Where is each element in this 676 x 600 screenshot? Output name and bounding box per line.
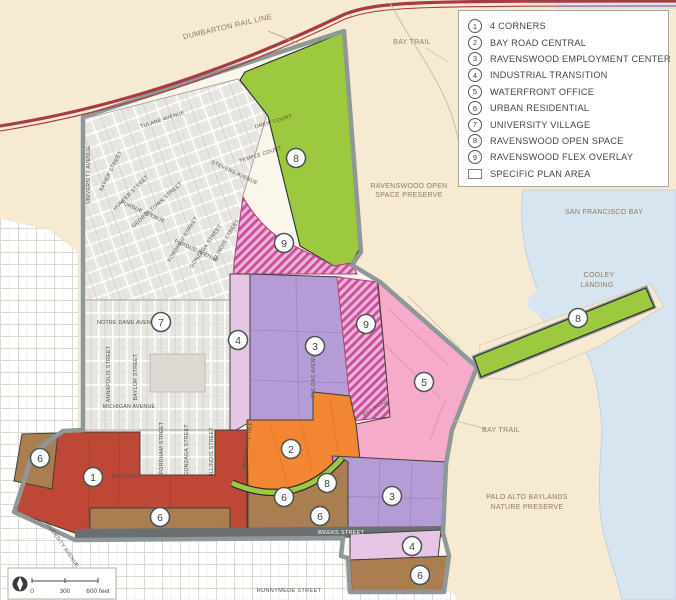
- map-label: GONZAGA STREET: [184, 424, 190, 476]
- svg-text:9: 9: [363, 319, 369, 331]
- svg-text:1: 1: [90, 472, 96, 484]
- legend-circle-2: 2: [468, 36, 482, 50]
- map-label: SPACE PRESERVE: [375, 192, 442, 199]
- svg-text:4: 4: [409, 541, 415, 553]
- district-marker-8: 8: [287, 149, 306, 168]
- svg-text:5: 5: [421, 377, 427, 389]
- legend-label: SPECIFIC PLAN AREA: [490, 169, 591, 179]
- legend-circle-4: 4: [468, 68, 482, 82]
- scale-end: 600 feet: [86, 588, 110, 595]
- legend-item-8: 8 RAVENSWOOD OPEN SPACE: [468, 133, 659, 149]
- district-marker-8: 8: [569, 309, 588, 328]
- district-marker-4: 4: [229, 331, 248, 350]
- map-label: NATURE PRESERVE: [491, 504, 564, 511]
- legend-circle-7: 7: [468, 118, 482, 132]
- legend-label: RAVENSWOOD FLEX OVERLAY: [490, 152, 633, 162]
- legend-item-2: 2 BAY ROAD CENTRAL: [468, 34, 659, 50]
- legend-item-9: 9 RAVENSWOOD FLEX OVERLAY: [468, 149, 659, 165]
- legend-circle-8: 8: [468, 134, 482, 148]
- legend: 1 4 CORNERS 2 BAY ROAD CENTRAL 3 RAVENSW…: [458, 10, 669, 187]
- district-7-tongue: [140, 430, 215, 475]
- legend-label: WATERFRONT OFFICE: [490, 87, 594, 97]
- map-label: BAY ROAD: [112, 474, 141, 480]
- district-marker-7: 7: [152, 313, 171, 332]
- svg-text:2: 2: [288, 444, 294, 456]
- specific-plan-map: 0 300 600 feet DUMBARTON RAIL LINEBAY TR…: [0, 0, 676, 600]
- map-label: WEEKS STREET: [318, 530, 365, 536]
- svg-text:6: 6: [157, 512, 163, 524]
- district-marker-1: 1: [84, 468, 103, 487]
- district-4-industrial-transition: [230, 274, 250, 430]
- legend-item-5: 5 WATERFRONT OFFICE: [468, 84, 659, 100]
- svg-text:8: 8: [324, 478, 330, 490]
- district-marker-6: 6: [311, 507, 330, 526]
- legend-circle-9: 9: [468, 150, 482, 164]
- map-label: ANNAPOLIS STREET: [106, 345, 112, 402]
- legend-label: BAY ROAD CENTRAL: [490, 38, 586, 48]
- map-label: BAY TRAIL: [482, 427, 520, 434]
- plan-area-swatch: [468, 169, 482, 179]
- svg-text:3: 3: [312, 341, 318, 353]
- map-label: LANDING: [580, 282, 613, 289]
- legend-circle-1: 1: [468, 19, 482, 33]
- map-label: COOLEY: [584, 272, 615, 279]
- svg-text:7: 7: [158, 317, 164, 329]
- svg-text:8: 8: [293, 153, 299, 165]
- map-label: UNIVERSITY AVENUE: [86, 146, 92, 204]
- svg-text:8: 8: [575, 313, 581, 325]
- svg-text:6: 6: [37, 453, 43, 465]
- svg-text:3: 3: [389, 491, 395, 503]
- legend-label: 4 CORNERS: [490, 21, 546, 31]
- district-marker-6: 6: [275, 488, 294, 507]
- district-marker-3: 3: [306, 337, 325, 356]
- legend-item-6: 6 URBAN RESIDENTIAL: [468, 100, 659, 116]
- map-label: FORDHAM STREET: [159, 421, 165, 474]
- legend-circle-5: 5: [468, 85, 482, 99]
- svg-text:9: 9: [281, 238, 287, 250]
- map-label: BAY TRAIL: [393, 39, 431, 46]
- map-label: SAN FRANCISCO BAY: [565, 209, 643, 216]
- district-6-urban-residential-southeast: [350, 556, 450, 592]
- svg-text:6: 6: [417, 570, 423, 582]
- svg-text:6: 6: [281, 492, 287, 504]
- district-marker-4: 4: [403, 537, 422, 556]
- district-marker-6: 6: [411, 566, 430, 585]
- legend-item-1: 1 4 CORNERS: [468, 18, 659, 34]
- large-parcel-block: [150, 354, 205, 392]
- map-label: RAVENSWOOD OPEN: [370, 183, 447, 190]
- legend-label: RAVENSWOOD EMPLOYMENT CENTER: [490, 54, 671, 64]
- scale-mid: 300: [60, 588, 71, 595]
- map-label: BAYLOR STREET: [133, 353, 139, 400]
- legend-item-7: 7 UNIVERSITY VILLAGE: [468, 116, 659, 132]
- svg-text:4: 4: [235, 335, 241, 347]
- legend-item-plan-area: SPECIFIC PLAN AREA: [468, 166, 659, 182]
- district-marker-6: 6: [31, 449, 50, 468]
- district-marker-8: 8: [318, 474, 337, 493]
- map-label: ILLINOIS STREET: [209, 427, 215, 475]
- map-label: MICHIGAN AVENUE: [103, 404, 156, 410]
- district-marker-9: 9: [275, 234, 294, 253]
- legend-circle-3: 3: [468, 52, 482, 66]
- district-marker-5: 5: [415, 373, 434, 392]
- scale-zero: 0: [30, 588, 34, 595]
- legend-label: INDUSTRIAL TRANSITION: [490, 70, 608, 80]
- svg-text:6: 6: [317, 511, 323, 523]
- map-label: RUNNYMEDE STREET: [257, 588, 322, 594]
- district-marker-9: 9: [357, 315, 376, 334]
- district-marker-6: 6: [151, 508, 170, 527]
- legend-item-4: 4 INDUSTRIAL TRANSITION: [468, 67, 659, 83]
- map-label: PULGAS AVENUE: [311, 350, 317, 397]
- legend-label: UNIVERSITY VILLAGE: [490, 120, 590, 130]
- legend-label: RAVENSWOOD OPEN SPACE: [490, 136, 624, 146]
- district-marker-3: 3: [383, 487, 402, 506]
- legend-item-3: 3 RAVENSWOOD EMPLOYMENT CENTER: [468, 51, 659, 67]
- legend-label: URBAN RESIDENTIAL: [490, 103, 589, 113]
- legend-circle-6: 6: [468, 101, 482, 115]
- district-marker-2: 2: [282, 440, 301, 459]
- inlet-water: [528, 291, 558, 315]
- map-label: NOTRE DAME AVENUE: [97, 320, 159, 326]
- scale-bar: 0 300 600 feet: [8, 568, 116, 599]
- map-label: PALO ALTO BAYLANDS: [486, 494, 568, 501]
